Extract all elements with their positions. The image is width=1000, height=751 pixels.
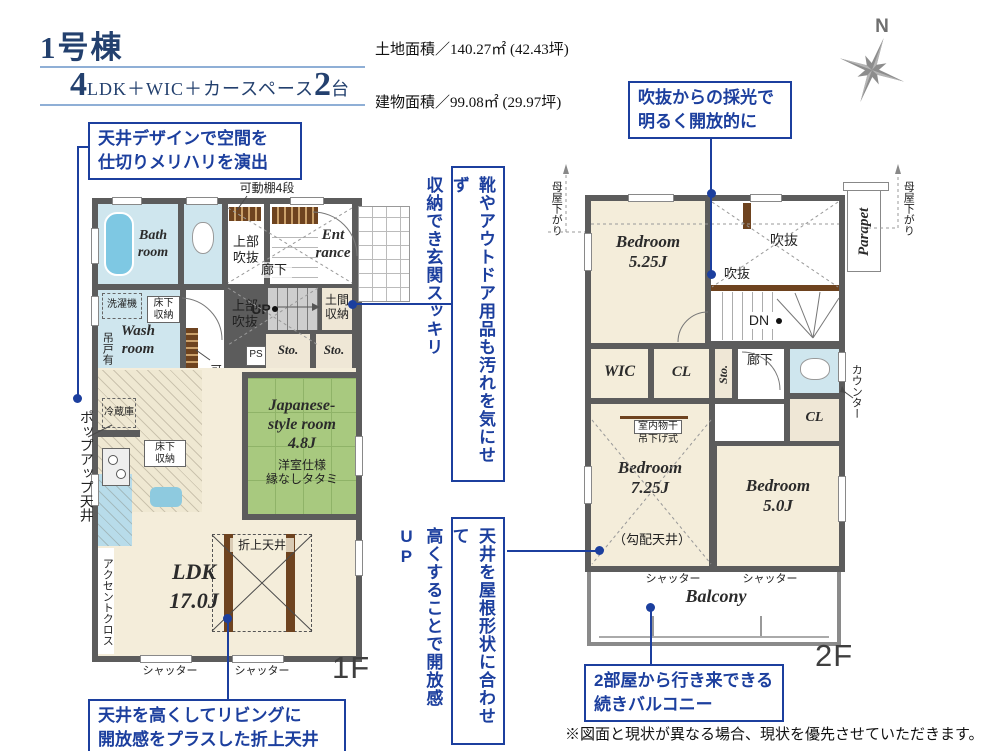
callout-connector (650, 607, 652, 665)
window (232, 655, 284, 663)
building-area: 建物面積／99.08㎡ (29.97坪) (375, 90, 569, 116)
moya-right-label: 母屋下がり (901, 166, 914, 250)
entrance-label: Ent rance (312, 226, 354, 262)
corridor-2f-label: 廊下 (742, 352, 778, 368)
callout-dot (73, 394, 82, 403)
callout-dot (707, 270, 716, 279)
toilet-icon (192, 222, 214, 254)
stove-icon (102, 448, 130, 486)
counter-label: カウンター (849, 352, 862, 430)
parapet-label: Parapet (855, 196, 873, 268)
storage-2f-label: Sto. (716, 354, 730, 394)
arrowhead (563, 164, 569, 174)
window (112, 197, 142, 205)
window (91, 296, 99, 326)
wall (242, 514, 362, 520)
callout-dot (223, 614, 232, 623)
divider (40, 104, 365, 106)
dn-dot (776, 318, 782, 324)
closet-1-label: CL (654, 363, 709, 381)
corridor-2f-lower (715, 404, 784, 441)
shelf-icon (229, 207, 261, 221)
shutter-label-1f-2: シャッター (232, 665, 292, 678)
window (186, 197, 218, 205)
accent-cloth-label: アクセントクロス (100, 552, 113, 652)
shutter-label-1f-1: シャッター (140, 665, 200, 678)
balcony-divider (652, 616, 654, 636)
disclaimer-text: ※図面と現状が異なる場合、現状を優先させていただきます。 (565, 723, 984, 744)
moya-left-label: 母屋下がり (549, 166, 562, 250)
storage-1-label: Sto. (266, 342, 310, 358)
callout-roof-ceiling: 天井を屋根形状に合わせて 高くすることで開放感UP (451, 517, 505, 745)
callout-connector (507, 550, 599, 552)
wall (98, 430, 140, 437)
window (750, 194, 782, 202)
window (355, 540, 363, 576)
window (584, 233, 592, 271)
callout-folded-ceiling: 天井を高くしてリビングに 開放感をプラスした折上天井 (88, 699, 346, 751)
bedroom-725-label: Bedroom 7.25J (606, 458, 694, 499)
window (628, 194, 674, 202)
washer-label: 洗濯機 (103, 299, 141, 311)
beam (743, 203, 751, 229)
ps-label: PS (246, 349, 266, 361)
window (584, 466, 592, 504)
callout-dot (707, 189, 716, 198)
bedroom-725-note: （勾配天井） (606, 532, 698, 548)
ldk-label: LDK 17.0J (148, 558, 240, 615)
balcony (587, 572, 841, 646)
window (290, 197, 324, 205)
window (838, 476, 846, 522)
plan-count-car: 2 (314, 66, 331, 103)
shelf-top-label: 可動棚4段 (232, 181, 302, 195)
bathroom-label: Bath room (128, 228, 178, 262)
void-label: 吹抜 (762, 232, 806, 249)
popup-ceiling-label: ポップアップ天井 (78, 410, 95, 522)
callout-dot (595, 546, 604, 555)
washroom-label: Wash room (106, 322, 170, 358)
japanese-room-label: Japanese- style room 4.8J (250, 396, 354, 454)
callout-entrance-storage: 靴やアウトドア用品も汚れを気にせず 収納でき玄関スッキリ (451, 166, 505, 482)
callout-connector (710, 133, 712, 277)
window (140, 655, 192, 663)
drying-label-2: 吊下げ式 (636, 434, 680, 446)
folded-ceiling-label: 折上天井 (230, 538, 294, 552)
hanging-door-label: 吊戸有 (100, 327, 113, 369)
underfloor-storage-2-label: 床下 収納 (144, 442, 186, 466)
floorplan-flyer: 1号棟 4LDK＋WIC＋カースペース2台 土地面積／140.27㎡ (42.4… (0, 0, 1000, 751)
void-small-label: 吹抜 (719, 266, 755, 282)
dn-label: DN (744, 312, 774, 329)
area-info: 土地面積／140.27㎡ (42.43坪) 建物面積／99.08㎡ (29.97… (375, 11, 569, 142)
underfloor-storage-1-label: 床下 収納 (147, 298, 180, 322)
upper-void-label-1: 上部 吹抜 (227, 234, 265, 265)
building-title: 1号棟 (40, 22, 124, 67)
entrance-storage-shelf (272, 207, 318, 224)
drying-label: 室内物干 (634, 420, 682, 434)
callout-dot (348, 300, 357, 309)
fridge-label: 冷蔵庫 (102, 407, 136, 419)
storage-2-label: Sto. (316, 342, 352, 358)
up-dot (272, 306, 278, 312)
shelf-icon (186, 328, 198, 368)
up-label: UP (247, 301, 275, 318)
floor1-name: 1F (332, 650, 370, 686)
entrance-porch (358, 206, 410, 302)
plan-summary-text: LDK＋WIC＋カースペース (87, 79, 314, 99)
callout-connector (77, 146, 79, 398)
land-area: 土地面積／140.27㎡ (42.43坪) (375, 37, 569, 63)
window (838, 352, 846, 382)
callout-balcony-link: 2部屋から行き来できる 続きバルコニー (584, 664, 784, 722)
compass-n-label: N (875, 16, 889, 37)
balcony-rail-line (599, 636, 829, 638)
callout-ceiling-design: 天井デザインで空間を 仕切りメリハリを演出 (88, 122, 302, 180)
corridor-label-1f: 廊下 (256, 262, 292, 278)
wic-label: WIC (591, 362, 648, 381)
shutter-label-2f-1: シャッター (645, 573, 701, 586)
bedroom-50-label: Bedroom 5.0J (734, 476, 822, 517)
bedroom-525-label: Bedroom 5.25J (604, 232, 692, 273)
balcony-label: Balcony (676, 586, 756, 608)
callout-void-light: 吹抜からの採光で 明るく開放的に (628, 81, 792, 139)
callout-dot (646, 603, 655, 612)
compass-icon: N (826, 10, 918, 108)
balcony-divider (760, 616, 762, 636)
plan-count-ldk: 4 (70, 66, 87, 103)
shutter-label-2f-2: シャッター (742, 573, 798, 586)
japanese-room-note: 洋室仕様 縁なしタタミ (260, 458, 344, 487)
plan-count-unit: 台 (331, 79, 350, 99)
plan-summary: 4LDK＋WIC＋カースペース2台 (60, 66, 360, 104)
drying-bar (620, 416, 688, 419)
floor2-name: 2F (815, 638, 853, 674)
toilet-icon (800, 358, 830, 380)
callout-connector (227, 618, 229, 700)
sink-icon (150, 487, 182, 507)
closet-2-label: CL (790, 410, 839, 427)
window (355, 436, 363, 476)
window (91, 228, 99, 264)
